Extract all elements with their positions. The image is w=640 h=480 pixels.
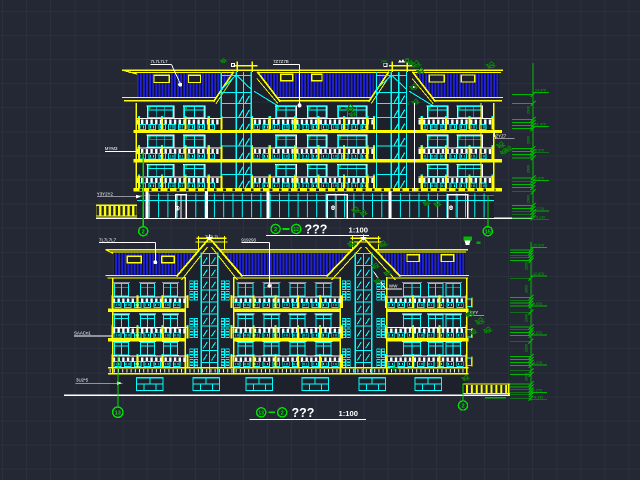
svg-text:14.370: 14.370 bbox=[535, 88, 546, 92]
svg-text:7L7L7L7: 7L7L7L7 bbox=[99, 237, 117, 242]
svg-text:12: 12 bbox=[293, 227, 299, 233]
svg-text:1:100: 1:100 bbox=[349, 226, 368, 235]
svg-text:13: 13 bbox=[115, 410, 121, 416]
svg-text:7.070: 7.070 bbox=[533, 331, 542, 335]
svg-text:13: 13 bbox=[258, 411, 264, 417]
svg-text:11.470: 11.470 bbox=[535, 122, 546, 126]
svg-text:1.270: 1.270 bbox=[533, 388, 542, 392]
svg-text:2: 2 bbox=[274, 227, 277, 233]
svg-text:2900: 2900 bbox=[525, 344, 529, 352]
svg-text:4.170: 4.170 bbox=[533, 361, 542, 365]
svg-text:2900: 2900 bbox=[527, 195, 531, 203]
svg-text:2900: 2900 bbox=[525, 373, 529, 381]
svg-text:5.670: 5.670 bbox=[535, 176, 544, 180]
svg-text:2900: 2900 bbox=[527, 165, 531, 173]
svg-text:2: 2 bbox=[142, 229, 145, 235]
svg-text:???: ??? bbox=[292, 406, 315, 420]
svg-text:ZYZ7: ZYZ7 bbox=[496, 133, 507, 138]
svg-text:244: 244 bbox=[381, 59, 387, 63]
svg-text:2900: 2900 bbox=[525, 314, 529, 322]
svg-text:2900: 2900 bbox=[525, 262, 529, 270]
svg-text:WW: WW bbox=[389, 284, 398, 289]
svg-text:Y3Y2Y2: Y3Y2Y2 bbox=[97, 191, 114, 196]
svg-text:2: 2 bbox=[281, 411, 284, 417]
svg-text:9.970: 9.970 bbox=[533, 302, 542, 306]
svg-text:SAACn1: SAACn1 bbox=[74, 331, 91, 336]
svg-text:-0.130: -0.130 bbox=[533, 396, 543, 400]
svg-text:15.570: 15.570 bbox=[533, 243, 544, 247]
svg-text:8.570: 8.570 bbox=[535, 149, 544, 153]
svg-text:2900: 2900 bbox=[527, 106, 531, 114]
svg-text:12.870: 12.870 bbox=[533, 272, 544, 276]
svg-text:2: 2 bbox=[461, 404, 464, 410]
svg-text:7L7L7L7: 7L7L7L7 bbox=[151, 59, 169, 64]
svg-text:???: ??? bbox=[305, 222, 328, 236]
svg-text:2.770: 2.770 bbox=[535, 207, 544, 211]
svg-text:919293: 919293 bbox=[241, 237, 256, 242]
svg-text:MYM3: MYM3 bbox=[105, 146, 118, 151]
svg-text:2900: 2900 bbox=[527, 136, 531, 144]
svg-text:15: 15 bbox=[485, 229, 491, 235]
svg-text:1:100: 1:100 bbox=[339, 409, 358, 418]
svg-text:7Z7Z7B: 7Z7Z7B bbox=[273, 59, 289, 64]
svg-text:-0.130: -0.130 bbox=[535, 216, 545, 220]
svg-text:2900: 2900 bbox=[525, 285, 529, 293]
svg-text:3: 3 bbox=[408, 102, 410, 106]
svg-text:7L7L7L: 7L7L7L bbox=[205, 234, 220, 239]
svg-text:3U2*5: 3U2*5 bbox=[76, 378, 89, 383]
